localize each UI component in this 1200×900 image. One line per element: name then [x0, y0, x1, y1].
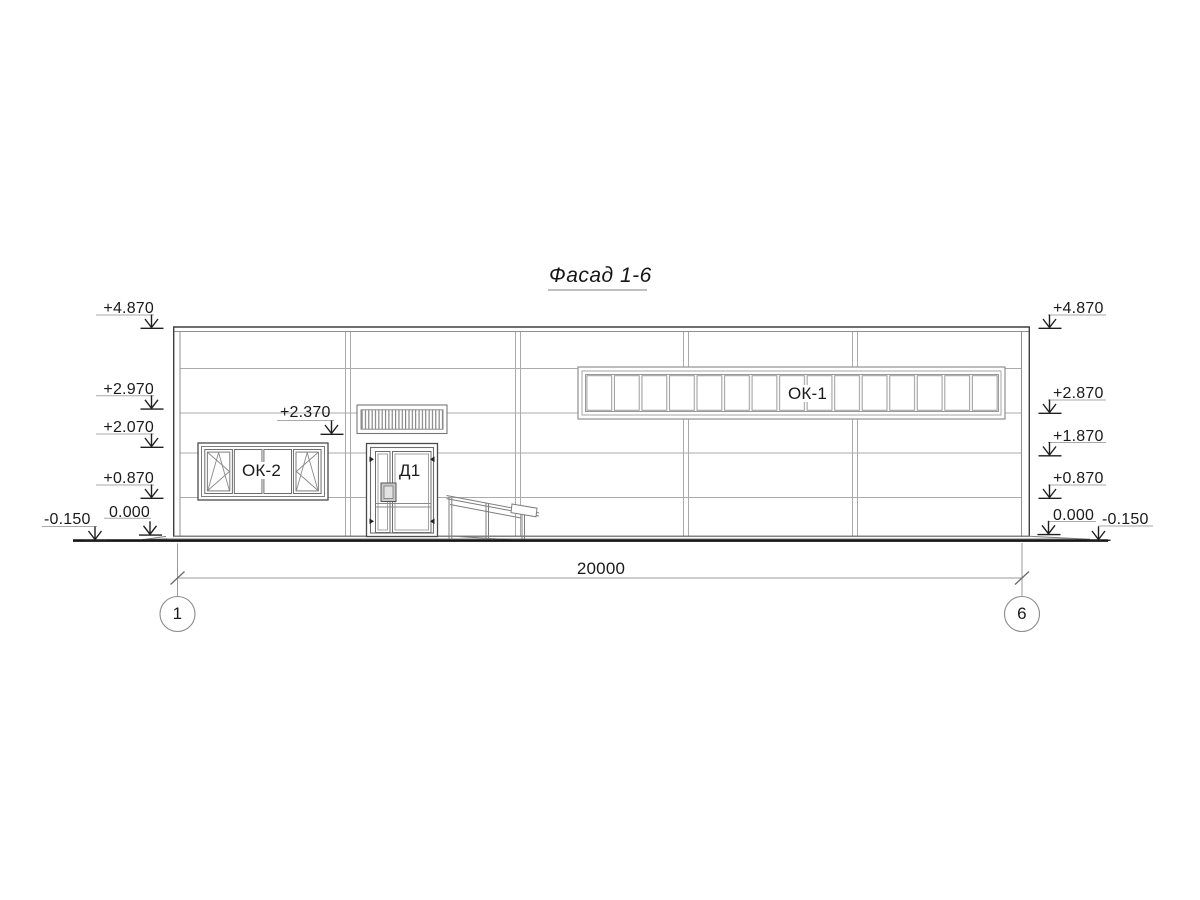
- elevation-label-left-minus0150: -0.150: [44, 511, 91, 528]
- overall-dimension-text: 20000: [551, 560, 651, 577]
- elevation-label-right-minus0150: -0.150: [1102, 511, 1149, 528]
- entrance-door-d1: [367, 444, 438, 537]
- grid-axis-6: 6: [1005, 605, 1040, 622]
- tag-window-ok2: ОК-2: [240, 462, 283, 479]
- elevation-label-right-1870: +1.870: [1053, 428, 1104, 445]
- elevation-label-right-2870: +2.870: [1053, 385, 1104, 402]
- panel-joint-lines: [180, 332, 1021, 537]
- elevation-label-left-2070: +2.070: [58, 419, 154, 436]
- elevation-label-right-0870: +0.870: [1053, 470, 1104, 487]
- tag-ribbon-window-ok1: ОК-1: [786, 385, 829, 402]
- elevation-label-left-2970: +2.970: [58, 381, 154, 398]
- elevation-label-left-0870: +0.870: [58, 470, 154, 487]
- tag-door-d1: Д1: [397, 462, 422, 479]
- grid-axis-bubbles: [160, 597, 1040, 632]
- elevation-marks: [42, 315, 1153, 541]
- facade-linework: [0, 0, 1200, 900]
- elevation-label-left-4870: +4.870: [58, 300, 154, 317]
- elevation-arrows: [84, 315, 1111, 541]
- elevation-label-canopy-2370: +2.370: [280, 404, 331, 421]
- drawing-title: Фасад 1-6: [549, 264, 652, 288]
- elevation-label-right-4870: +4.870: [1053, 300, 1104, 317]
- elevation-label-right-0000: 0.000: [1053, 507, 1094, 524]
- louver-grille: [357, 405, 447, 434]
- grid-axis-1: 1: [160, 605, 195, 622]
- facade-outline: [166, 327, 1075, 539]
- access-ramp: [447, 496, 540, 541]
- drawing-sheet: Фасад 1-6 +4.870 +2.970 +2.070 +0.870 0.…: [0, 0, 1200, 900]
